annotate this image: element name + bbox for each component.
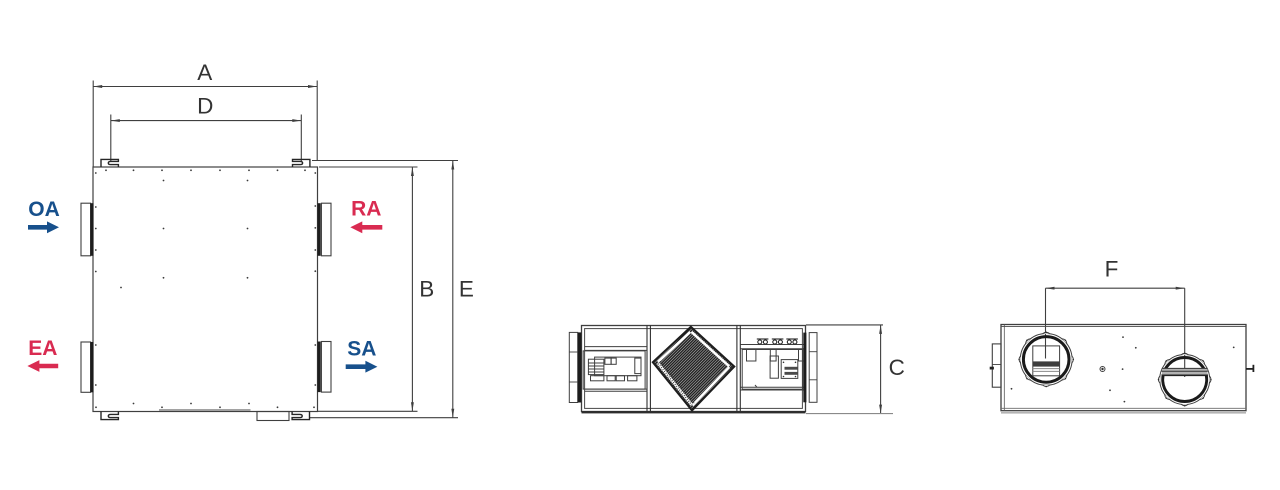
svg-text:D: D bbox=[197, 93, 213, 118]
svg-text:SA: SA bbox=[347, 338, 376, 361]
svg-text:E: E bbox=[459, 276, 474, 301]
svg-text:C: C bbox=[889, 355, 905, 380]
svg-text:EA: EA bbox=[28, 337, 57, 360]
svg-text:F: F bbox=[1105, 257, 1119, 282]
svg-text:B: B bbox=[419, 276, 434, 301]
svg-text:A: A bbox=[197, 60, 212, 85]
svg-text:OA: OA bbox=[28, 198, 60, 221]
svg-text:RA: RA bbox=[351, 198, 381, 221]
